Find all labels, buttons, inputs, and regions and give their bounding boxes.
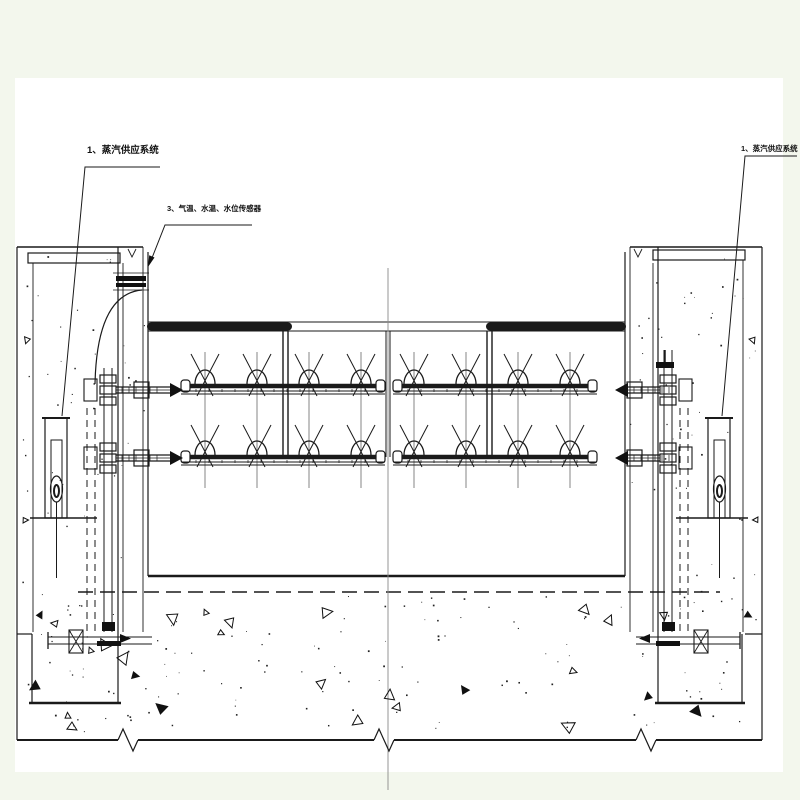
label-steam-supply-right: 1、蒸汽供应系统 — [741, 143, 798, 153]
gate-heating-system-drawing: 1、蒸汽供应系统 3、气温、水温、水位传感器 1、蒸汽供应系统 — [0, 0, 800, 800]
paper-sheet — [15, 78, 783, 772]
cable-conduit — [116, 276, 146, 281]
label-steam-supply-left: 1、蒸汽供应系统 — [87, 144, 159, 156]
drawing-canvas: 1、蒸汽供应系统 3、气温、水温、水位传感器 1、蒸汽供应系统 — [0, 0, 800, 800]
label-sensors: 3、气温、水温、水位传感器 — [167, 203, 262, 213]
